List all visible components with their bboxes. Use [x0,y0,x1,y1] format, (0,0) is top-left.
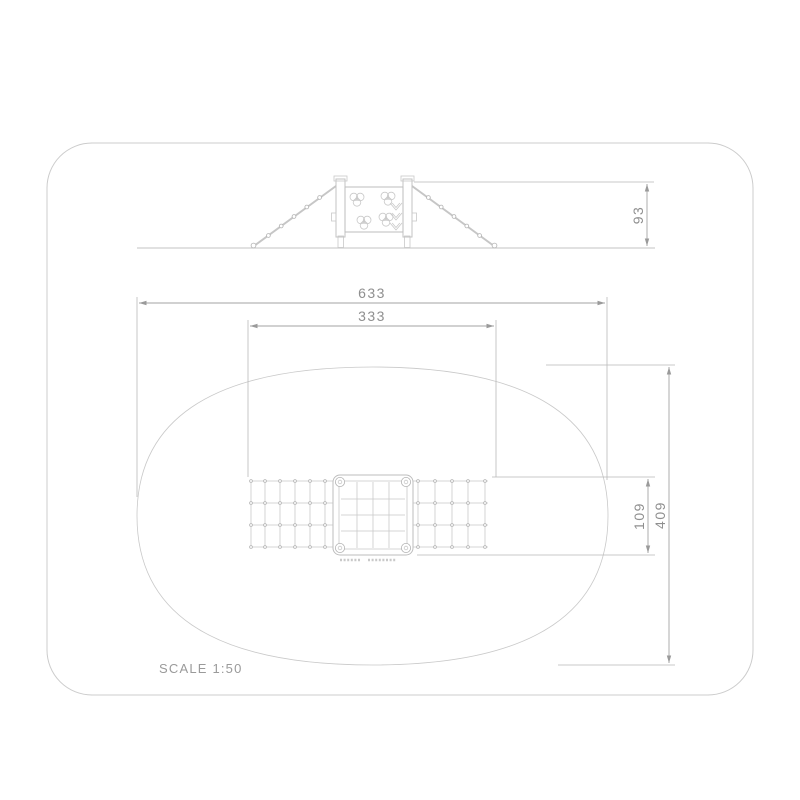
plan-view: 633 333 [137,285,675,676]
tower-post-right [403,179,412,237]
tower-plan [333,475,413,560]
net-right-verticals [418,481,485,547]
dim-label-93: 93 [630,206,646,225]
tension-rope-left [251,186,336,248]
dimension-inner-width-333: 333 [248,308,496,477]
post-bracket-left [332,213,337,221]
dim-label-409: 409 [652,501,668,529]
dim-label-333: 333 [358,308,386,324]
tower-leg-left [338,236,344,248]
post-bracket-right [412,213,417,221]
drawing-page: 93 633 333 [0,0,800,800]
rope-ground-anchor-left [251,243,256,248]
net-left-verticals [251,481,325,547]
scale-label: SCALE 1:50 [159,661,243,676]
tower-leg-right [405,236,411,248]
dim-label-109: 109 [631,502,647,530]
rope-ground-anchor-right [492,243,497,248]
elevation-view: 93 [137,176,655,248]
dimension-overall-depth-409: 409 [546,365,675,665]
tower-elevation [332,176,417,248]
dim-label-633: 633 [358,285,386,301]
tension-rope-right [412,186,497,248]
dimension-net-depth-109: 109 [417,477,655,555]
drawing-canvas: 93 633 333 [0,0,800,800]
tower-post-left [336,179,345,237]
